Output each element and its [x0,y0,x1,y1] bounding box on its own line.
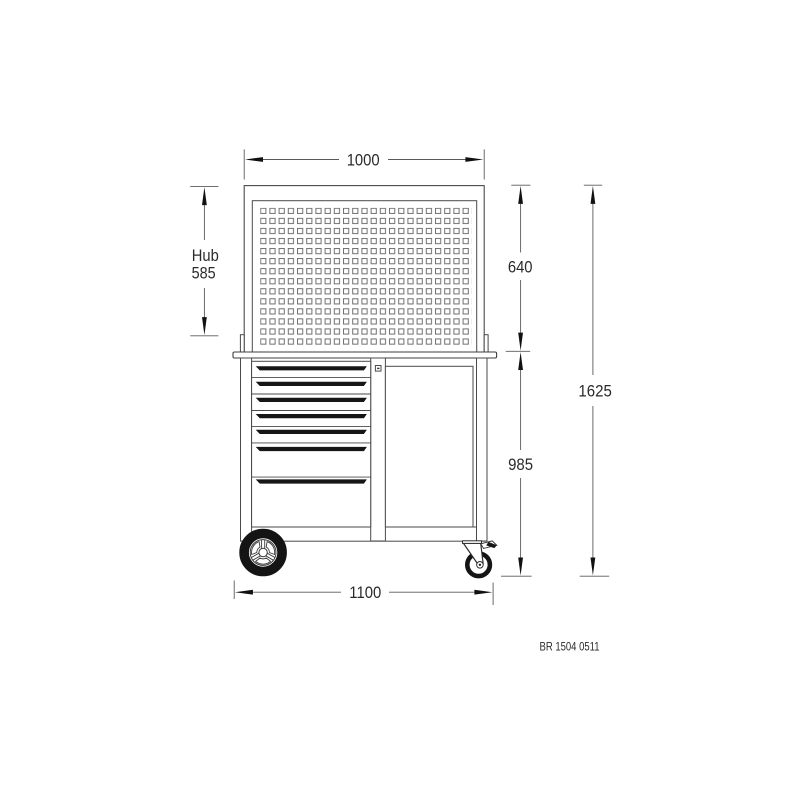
svg-text:640: 640 [508,259,533,277]
svg-text:1000: 1000 [347,151,380,169]
svg-text:1625: 1625 [578,382,612,400]
svg-text:BR 1504 0511: BR 1504 0511 [540,640,600,654]
svg-text:585: 585 [192,264,216,282]
svg-text:1100: 1100 [349,584,381,602]
svg-text:985: 985 [508,456,533,474]
svg-text:Hub: Hub [192,247,219,265]
